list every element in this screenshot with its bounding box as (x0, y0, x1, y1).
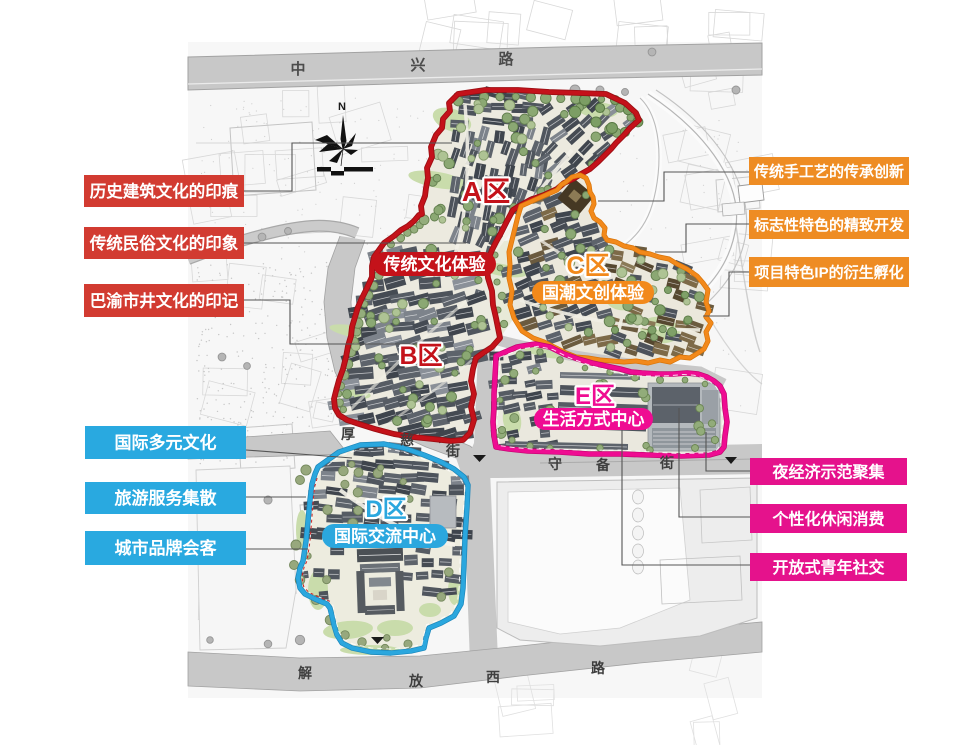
svg-text:解: 解 (298, 665, 312, 681)
svg-text:城市品牌会客: 城市品牌会客 (115, 538, 218, 558)
svg-text:守: 守 (548, 456, 562, 472)
svg-text:开放式青年社交: 开放式青年社交 (772, 558, 884, 577)
svg-text:路: 路 (591, 660, 606, 676)
svg-text:E区: E区 (575, 383, 615, 410)
svg-text:国际交流中心: 国际交流中心 (334, 526, 436, 546)
svg-text:慈: 慈 (400, 432, 414, 448)
svg-text:西: 西 (486, 669, 500, 685)
svg-text:旅游服务集散: 旅游服务集散 (115, 488, 218, 508)
svg-text:A区: A区 (462, 176, 510, 207)
svg-text:夜经济示范聚集: 夜经济示范聚集 (771, 462, 885, 481)
svg-text:传统手工艺的传承创新: 传统手工艺的传承创新 (753, 162, 904, 180)
svg-text:兴: 兴 (410, 57, 425, 74)
svg-text:路: 路 (498, 50, 514, 68)
svg-text:放: 放 (408, 673, 424, 689)
svg-text:传统民俗文化的印象: 传统民俗文化的印象 (89, 233, 239, 253)
svg-text:厚: 厚 (341, 426, 355, 442)
svg-text:传统文化体验: 传统文化体验 (383, 254, 487, 274)
svg-text:街: 街 (659, 455, 674, 471)
svg-text:巴渝市井文化的印记: 巴渝市井文化的印记 (90, 290, 239, 310)
svg-text:生活方式中心: 生活方式中心 (543, 409, 645, 429)
svg-text:D区: D区 (365, 496, 406, 523)
svg-text:标志性特色的精致开发: 标志性特色的精致开发 (753, 216, 905, 234)
svg-text:国潮文创体验: 国潮文创体验 (542, 283, 645, 303)
svg-text:个性化休闲消费: 个性化休闲消费 (771, 509, 884, 528)
svg-text:C区: C区 (566, 252, 609, 280)
svg-text:历史建筑文化的印痕: 历史建筑文化的印痕 (90, 181, 239, 201)
svg-text:B区: B区 (399, 342, 442, 370)
svg-text:项目特色IP的衍生孵化: 项目特色IP的衍生孵化 (754, 263, 903, 281)
svg-text:备: 备 (595, 457, 611, 473)
svg-text:街: 街 (445, 443, 460, 459)
svg-text:N: N (338, 101, 346, 113)
svg-text:国际多元文化: 国际多元文化 (115, 433, 217, 453)
svg-text:中: 中 (290, 60, 305, 78)
